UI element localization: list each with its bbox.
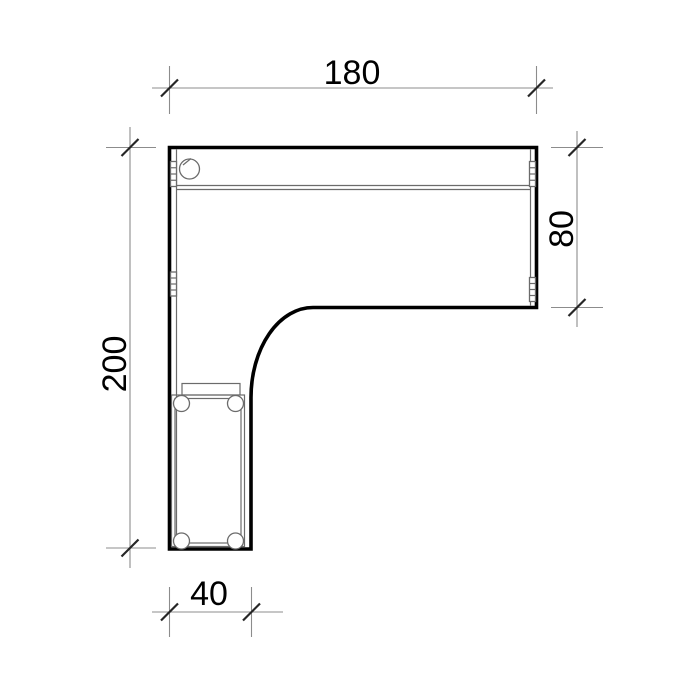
caster-bottom-right [228, 533, 244, 549]
caster-bottom-left [174, 533, 190, 549]
desk-top-outline-path [170, 148, 537, 550]
hinge-marker-left-top [171, 162, 177, 187]
desk-outline [170, 148, 537, 550]
hinge-marker-left-bottom [171, 272, 177, 296]
desk-plan-page: 180 80 200 40 [0, 0, 700, 700]
cable-grommet-hole [180, 159, 200, 180]
dimension-bottom-width: 40 [152, 575, 283, 637]
dimension-label-left: 200 [96, 336, 134, 393]
grommet-circle [180, 159, 200, 179]
dimension-left-depth: 200 [96, 127, 156, 568]
caster-top-left [174, 396, 190, 412]
dimension-top-width: 180 [152, 54, 553, 114]
caster-top-right [228, 396, 244, 412]
hinge-marker-right-top [530, 162, 536, 187]
dimension-right-depth: 80 [543, 131, 603, 327]
hinge-marker-right-bottom [530, 278, 536, 302]
dimension-label-bottom: 40 [190, 575, 228, 613]
dimension-label-top: 180 [324, 54, 381, 92]
desk-plan-drawing: 180 80 200 40 [0, 0, 700, 700]
dimension-label-right: 80 [543, 210, 581, 248]
